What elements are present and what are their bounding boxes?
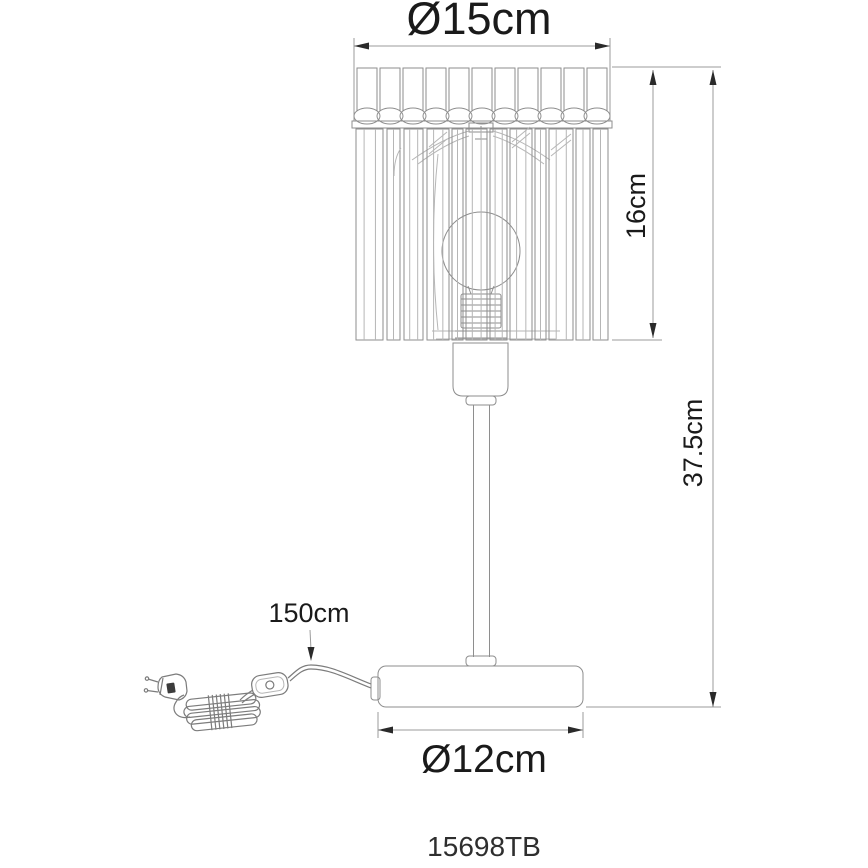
peg-foot bbox=[423, 108, 449, 124]
peg-rod bbox=[518, 68, 538, 111]
peg-rod bbox=[564, 68, 584, 111]
cable bbox=[288, 665, 371, 684]
shade-rod bbox=[404, 129, 423, 340]
peg-rod bbox=[426, 68, 446, 111]
spider-arm bbox=[493, 136, 544, 164]
peg-foot bbox=[492, 108, 518, 124]
dimension-arrow-up-icon bbox=[710, 70, 717, 85]
bulb-neck bbox=[468, 286, 471, 294]
technical-drawing-table-lamp: Ø15cm 16cm 37.5cm 150cm Ø12cm bbox=[0, 0, 868, 868]
shade-diameter-label: Ø15cm bbox=[406, 0, 551, 44]
dimension-base-diameter: Ø12cm bbox=[378, 712, 583, 781]
dimension-arrow-right-icon bbox=[595, 43, 610, 50]
peg-foot bbox=[446, 108, 472, 124]
coil-wrap-line bbox=[212, 695, 216, 730]
peg-foot bbox=[538, 108, 564, 124]
shade-height-label: 16cm bbox=[621, 173, 651, 239]
peg-foot bbox=[561, 108, 587, 124]
dimension-arrow-down-icon bbox=[308, 647, 315, 661]
coil-wrap-line bbox=[220, 694, 224, 729]
plug-prong bbox=[148, 679, 158, 682]
dimension-arrow-left-icon bbox=[354, 43, 369, 50]
lamp-base bbox=[378, 666, 583, 707]
base-diameter-label: Ø12cm bbox=[421, 738, 547, 781]
plug-prong-tip bbox=[145, 677, 148, 680]
plug-prong-tip bbox=[144, 689, 147, 692]
total-height-label: 37.5cm bbox=[678, 399, 708, 488]
power-cable-assembly bbox=[144, 665, 371, 733]
shade-rod bbox=[549, 129, 573, 340]
shade-top-pegs bbox=[354, 68, 610, 124]
plug-grip bbox=[166, 682, 175, 693]
base-collar bbox=[466, 656, 496, 666]
glass-reflection-marks bbox=[394, 127, 571, 330]
product-code: 15698TB bbox=[427, 831, 541, 862]
switch-face bbox=[255, 676, 285, 694]
peg-rod bbox=[449, 68, 469, 111]
lamp-dimension-diagram: Ø15cm 16cm 37.5cm 150cm Ø12cm bbox=[0, 0, 868, 868]
reflection-line bbox=[434, 154, 439, 330]
switch-button bbox=[265, 680, 274, 689]
coil-wrap-line bbox=[228, 693, 232, 728]
peg-rod bbox=[541, 68, 561, 111]
peg-foot bbox=[584, 108, 610, 124]
spider-arm bbox=[412, 131, 469, 160]
coil-wrap-line bbox=[224, 694, 228, 729]
peg-foot bbox=[400, 108, 426, 124]
dimension-cable-length: 150cm bbox=[268, 598, 349, 661]
socket-housing bbox=[453, 343, 508, 396]
cable bbox=[242, 694, 255, 703]
peg-foot bbox=[377, 108, 403, 124]
dimension-arrow-up-icon bbox=[650, 70, 657, 85]
lamp-shade-internals bbox=[412, 123, 560, 339]
shade-rod bbox=[490, 129, 507, 340]
peg-foot bbox=[515, 108, 541, 124]
peg-foot bbox=[469, 108, 495, 124]
shade-rod bbox=[356, 129, 383, 340]
peg-rod bbox=[403, 68, 423, 111]
peg-rod bbox=[495, 68, 515, 111]
dimension-arrow-down-icon bbox=[650, 323, 657, 338]
peg-rod bbox=[380, 68, 400, 111]
peg-foot bbox=[354, 108, 380, 124]
bulb-neck bbox=[491, 286, 494, 294]
peg-rod bbox=[587, 68, 607, 111]
dimension-shade-height: 16cm bbox=[612, 67, 721, 340]
spider-arm bbox=[418, 136, 469, 164]
shade-glass-rods bbox=[356, 129, 608, 340]
dimension-arrow-left-icon bbox=[378, 727, 393, 734]
coil-wrap-line bbox=[208, 695, 212, 730]
cable-gland bbox=[371, 677, 380, 700]
shade-rod bbox=[466, 129, 487, 340]
cable bbox=[240, 690, 253, 700]
cable-length-label: 150cm bbox=[268, 598, 349, 628]
shade-rod bbox=[510, 129, 532, 340]
dimension-arrow-down-icon bbox=[710, 692, 717, 707]
coil-wrap-line bbox=[216, 695, 220, 730]
spider-arm bbox=[493, 131, 550, 160]
dimension-shade-diameter: Ø15cm bbox=[354, 0, 610, 121]
hatch-mark bbox=[551, 134, 571, 156]
inline-switch bbox=[250, 671, 289, 698]
plug-prong bbox=[147, 691, 158, 693]
dimension-arrow-right-icon bbox=[568, 727, 583, 734]
peg-rod bbox=[472, 68, 492, 111]
plug-face-line bbox=[160, 678, 163, 695]
peg-rod bbox=[357, 68, 377, 111]
socket-collar bbox=[466, 396, 496, 405]
lamp-body bbox=[371, 343, 583, 707]
